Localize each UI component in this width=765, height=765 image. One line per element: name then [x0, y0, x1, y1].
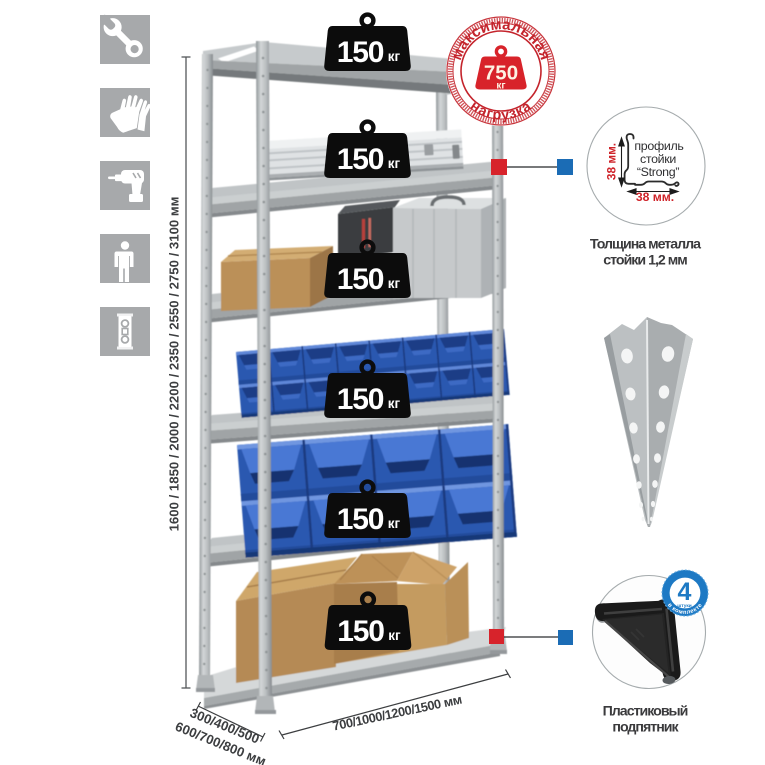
svg-text:150: 150: [337, 263, 384, 296]
svg-text:38 мм.: 38 мм.: [636, 190, 674, 204]
svg-text:стойки: стойки: [640, 152, 676, 166]
svg-text:кг: кг: [496, 81, 505, 92]
svg-text:4: 4: [678, 578, 692, 606]
svg-text:кг: кг: [388, 516, 401, 531]
svg-text:профиль: профиль: [634, 139, 683, 153]
svg-text:подпятник: подпятник: [612, 720, 679, 736]
svg-text:“Strong”: “Strong”: [637, 165, 680, 179]
svg-text:150: 150: [337, 36, 384, 69]
svg-text:150: 150: [337, 383, 384, 416]
svg-text:кг: кг: [388, 276, 401, 291]
svg-text:150: 150: [337, 143, 384, 176]
svg-text:Пластиковый: Пластиковый: [603, 704, 688, 720]
svg-text:штуки: штуки: [677, 604, 692, 609]
svg-text:Толщина металла: Толщина металла: [590, 237, 701, 253]
svg-text:150: 150: [337, 615, 384, 648]
svg-text:150: 150: [337, 503, 384, 536]
svg-text:1600 / 1850 / 2000 / 2200 / 23: 1600 / 1850 / 2000 / 2200 / 2350 / 2550 …: [167, 197, 182, 532]
svg-text:кг: кг: [388, 49, 401, 64]
svg-text:38 мм.: 38 мм.: [605, 143, 619, 180]
svg-text:кг: кг: [388, 156, 401, 171]
svg-text:стойки 1,2 мм: стойки 1,2 мм: [603, 253, 687, 269]
svg-text:кг: кг: [388, 628, 401, 643]
svg-text:кг: кг: [388, 396, 401, 411]
